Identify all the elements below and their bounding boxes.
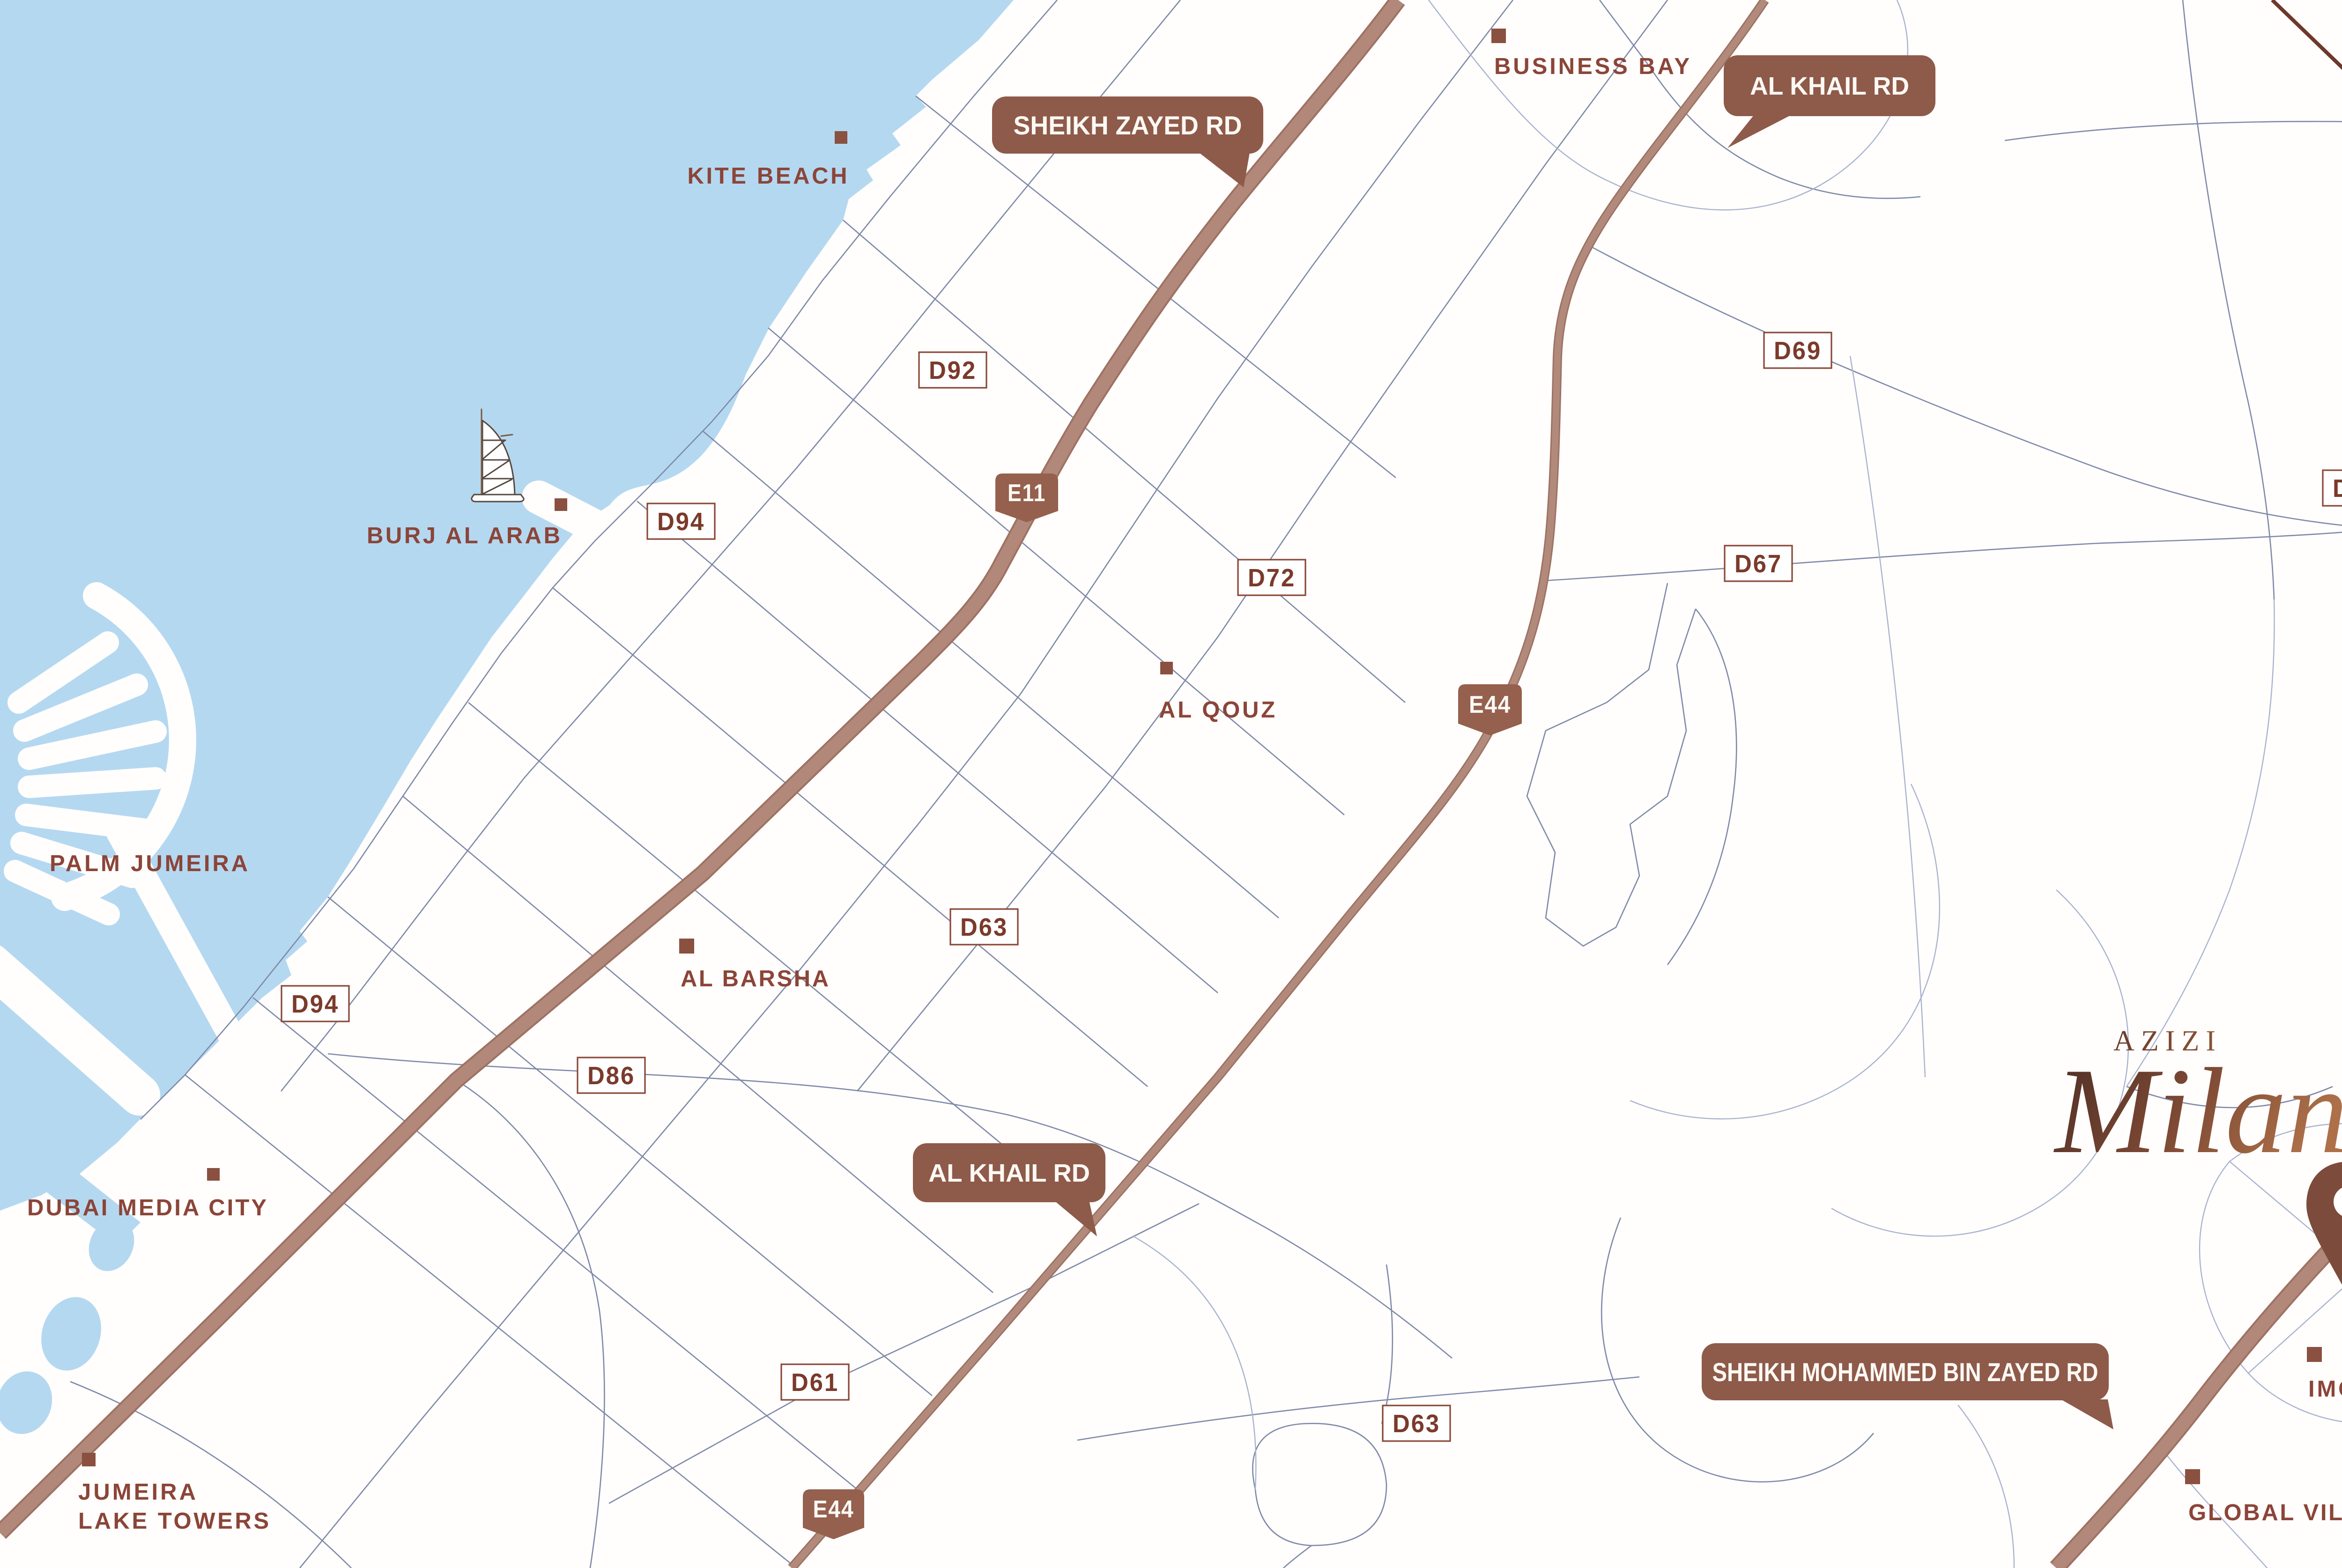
svg-text:BUSINESS BAY: BUSINESS BAY bbox=[1494, 54, 1690, 79]
svg-text:D94: D94 bbox=[657, 508, 705, 536]
svg-text:AL KHAIL RD: AL KHAIL RD bbox=[928, 1159, 1090, 1187]
svg-text:D67: D67 bbox=[2333, 474, 2342, 503]
svg-text:Milan: Milan bbox=[2053, 1043, 2342, 1179]
svg-text:D86: D86 bbox=[587, 1062, 635, 1090]
svg-text:D92: D92 bbox=[929, 356, 977, 385]
svg-text:KITE BEACH: KITE BEACH bbox=[688, 163, 847, 189]
svg-text:E44: E44 bbox=[1469, 691, 1511, 718]
svg-text:D63: D63 bbox=[960, 913, 1008, 941]
svg-text:LAKE TOWERS: LAKE TOWERS bbox=[78, 1509, 269, 1534]
svg-text:SHEIKH ZAYED RD: SHEIKH ZAYED RD bbox=[1014, 111, 1242, 140]
svg-text:PALM JUMEIRA: PALM JUMEIRA bbox=[50, 851, 248, 876]
svg-text:AL KHAIL RD: AL KHAIL RD bbox=[1750, 72, 1909, 100]
svg-text:SHEIKH MOHAMMED BIN ZAYED RD: SHEIKH MOHAMMED BIN ZAYED RD bbox=[1712, 1357, 2098, 1387]
svg-text:AL BARSHA: AL BARSHA bbox=[681, 966, 829, 991]
svg-text:D63: D63 bbox=[1393, 1410, 1440, 1438]
svg-text:D94: D94 bbox=[291, 990, 339, 1018]
svg-text:D69: D69 bbox=[1774, 337, 1822, 365]
svg-text:D61: D61 bbox=[791, 1368, 839, 1397]
svg-text:D72: D72 bbox=[1248, 564, 1296, 592]
svg-text:D67: D67 bbox=[1734, 550, 1782, 578]
svg-text:E11: E11 bbox=[1008, 480, 1046, 507]
svg-text:E44: E44 bbox=[813, 1496, 854, 1523]
